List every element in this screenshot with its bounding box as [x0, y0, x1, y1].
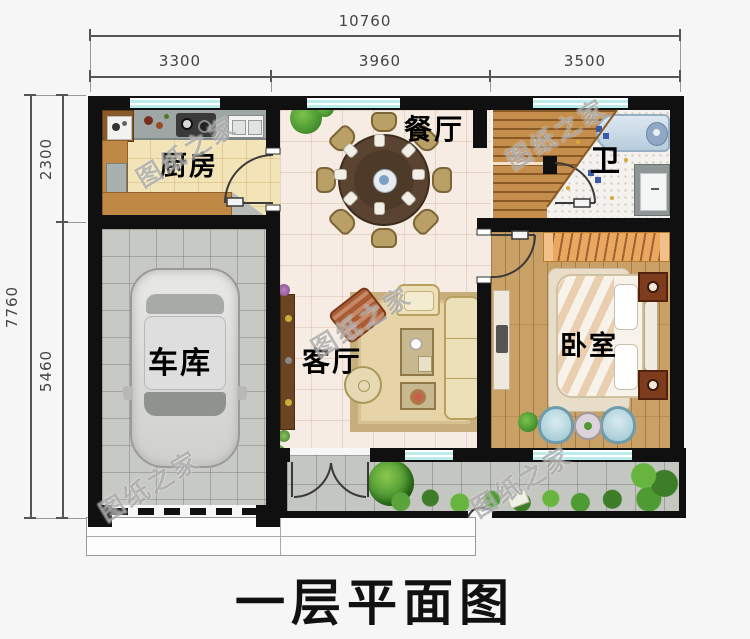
garage-label: 车库 — [148, 338, 212, 382]
kitchen-door-handle — [227, 198, 243, 206]
kitchen-door-arc — [225, 155, 273, 203]
floor-plan: 10760 3300 3960 3500 7760 2300 5460 — [0, 0, 750, 639]
bathroom-door-handle — [574, 199, 590, 207]
bedroom-label: 卧室 — [560, 324, 618, 363]
bathroom-label: 卫 — [590, 136, 622, 180]
door-frame — [266, 148, 280, 154]
plan-title: 一层平面图 — [0, 563, 750, 635]
entry-door-arc-left — [294, 463, 331, 497]
door-frame — [477, 277, 491, 283]
bedroom-door-arc — [491, 235, 535, 277]
dining-label: 餐厅 — [404, 108, 464, 148]
entry-door-arc-right — [331, 463, 366, 497]
door-frame — [477, 229, 491, 235]
door-frame — [266, 205, 280, 211]
bedroom-door-handle — [512, 231, 528, 239]
